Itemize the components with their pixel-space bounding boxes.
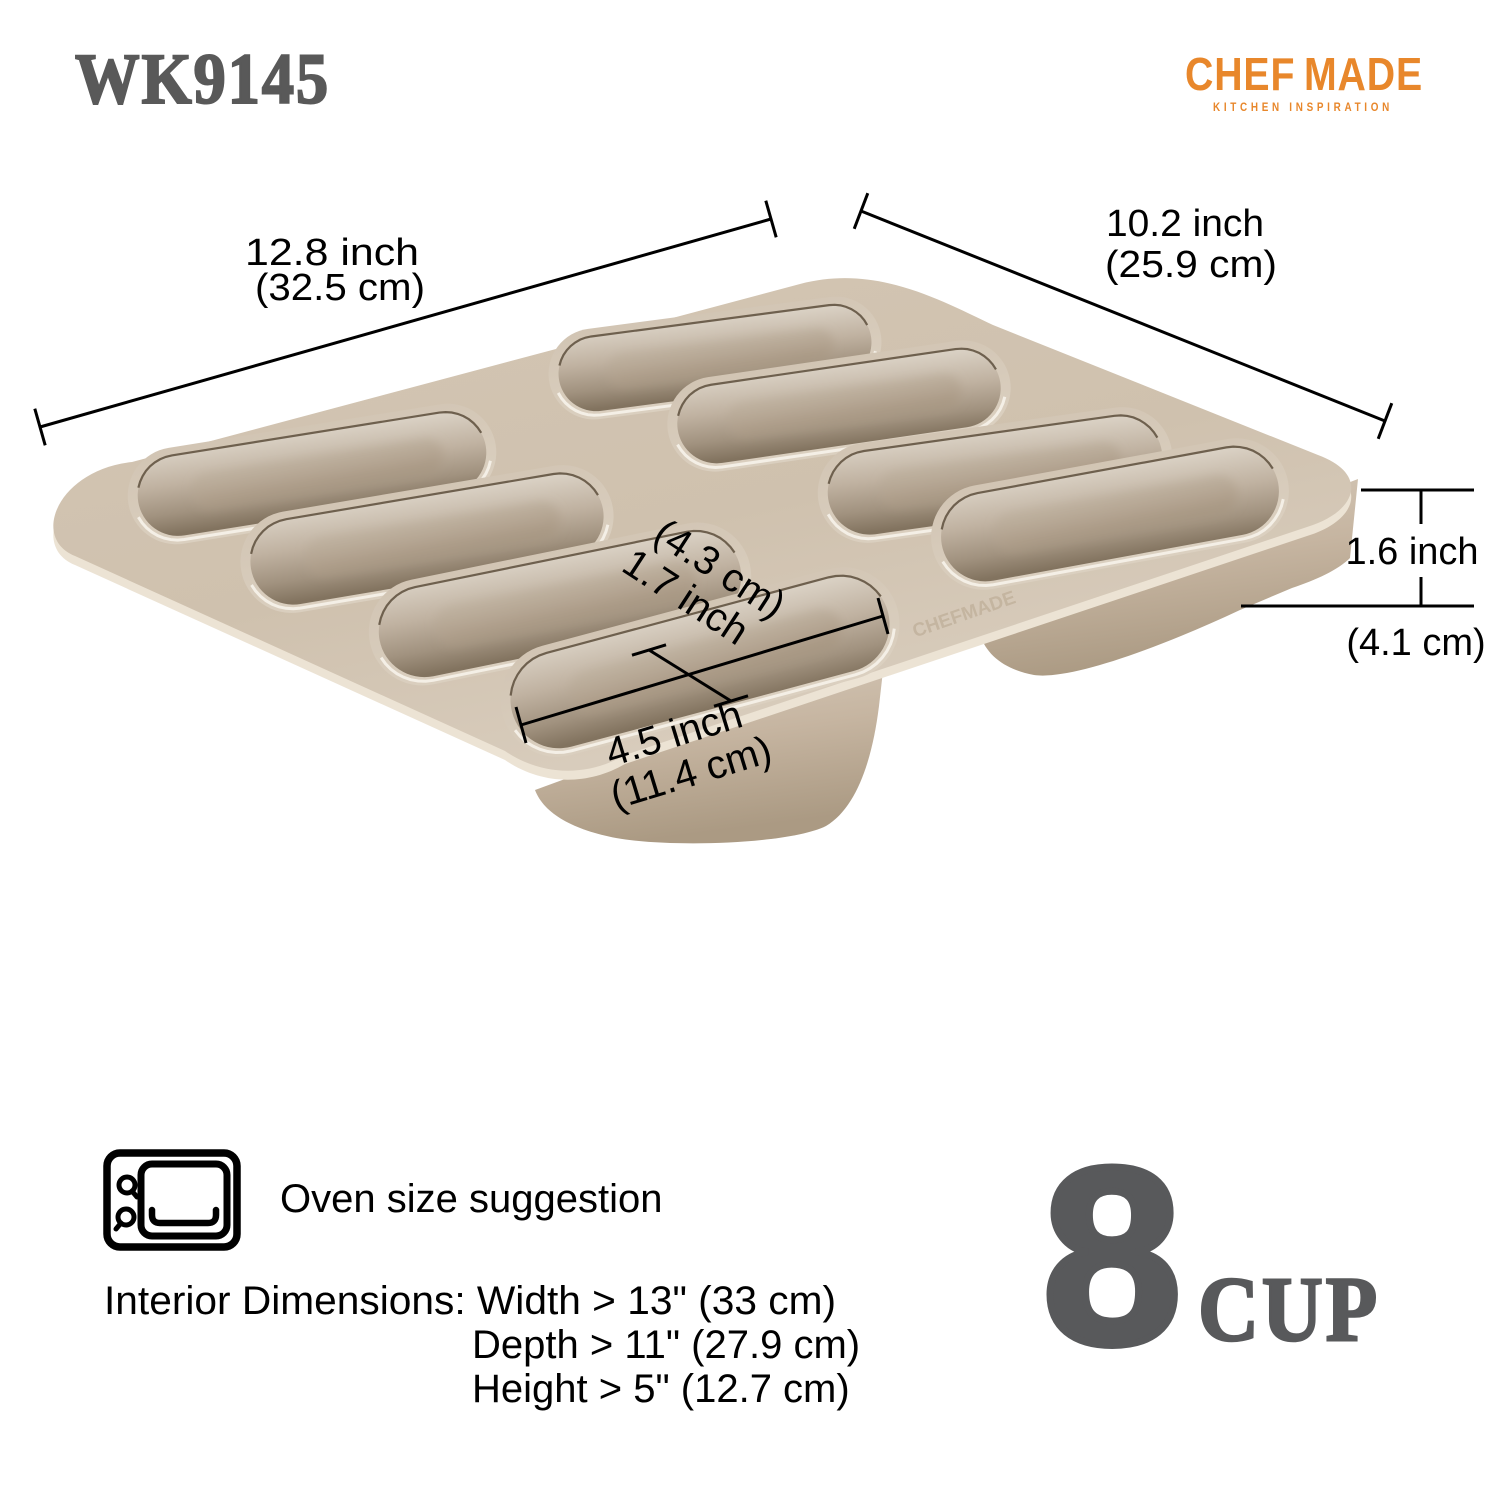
svg-text:Depth > 11" (27.9 cm): Depth > 11" (27.9 cm) — [472, 1323, 860, 1367]
svg-text:(25.9 cm): (25.9 cm) — [1105, 244, 1277, 286]
svg-text:KITCHEN INSPIRATION: KITCHEN INSPIRATION — [1213, 100, 1393, 114]
svg-text:Interior Dimensions: Width > 1: Interior Dimensions: Width > 13" (33 cm) — [104, 1279, 836, 1323]
svg-text:10.2 inch: 10.2 inch — [1106, 203, 1264, 245]
svg-text:Height > 5" (12.7 cm): Height > 5" (12.7 cm) — [472, 1367, 850, 1411]
svg-text:8: 8 — [1042, 1116, 1182, 1397]
svg-text:(4.1 cm): (4.1 cm) — [1346, 622, 1485, 664]
svg-text:Oven size suggestion: Oven size suggestion — [280, 1177, 662, 1221]
svg-text:CUP: CUP — [1198, 1258, 1380, 1360]
svg-text:(32.5 cm): (32.5 cm) — [255, 267, 425, 309]
svg-text:CHEF MADE: CHEF MADE — [1185, 48, 1423, 100]
svg-text:WK9145: WK9145 — [75, 39, 330, 119]
svg-text:1.6 inch: 1.6 inch — [1345, 531, 1478, 573]
